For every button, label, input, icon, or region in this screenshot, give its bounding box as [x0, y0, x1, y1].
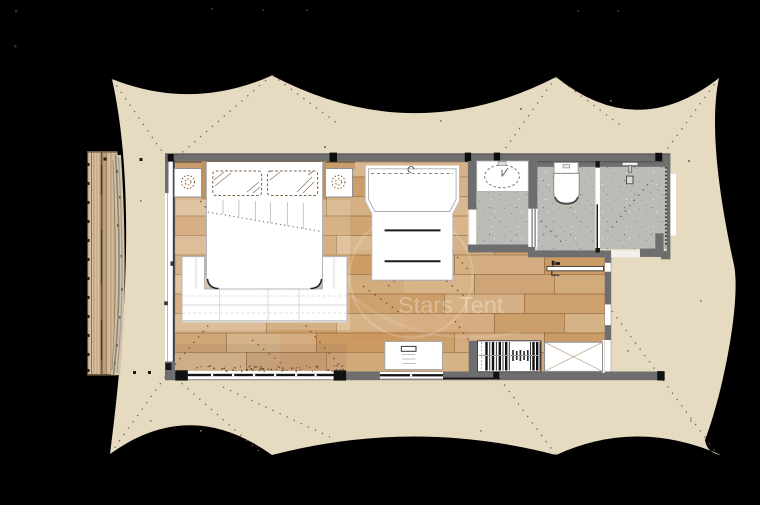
- svg-text:Stars Tent: Stars Tent: [398, 292, 504, 318]
